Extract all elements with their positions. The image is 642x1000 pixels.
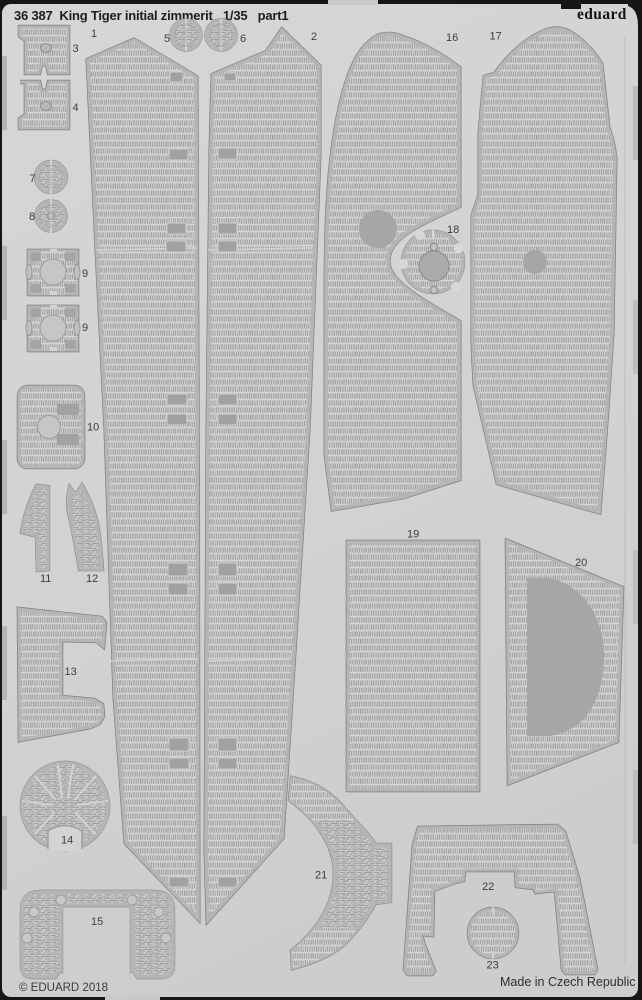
svg-text:21: 21 [315,870,327,882]
svg-text:9: 9 [82,268,88,280]
svg-text:12: 12 [86,573,98,585]
svg-text:3: 3 [73,43,79,55]
svg-text:11: 11 [40,573,51,585]
svg-text:eduard: eduard [577,6,627,23]
svg-text:18: 18 [447,224,459,236]
svg-text:2: 2 [311,31,317,43]
svg-text:7: 7 [30,173,36,185]
svg-text:14: 14 [61,835,73,847]
svg-text:9: 9 [82,322,88,334]
svg-text:1: 1 [91,28,97,40]
svg-text:15: 15 [91,916,103,928]
svg-text:4: 4 [73,102,79,114]
svg-text:23: 23 [487,960,499,972]
svg-text:19: 19 [407,529,419,541]
svg-text:8: 8 [29,211,35,223]
svg-text:10: 10 [87,422,99,434]
svg-text:20: 20 [575,557,587,569]
svg-text:5: 5 [164,33,170,45]
svg-text:36 387 King Tiger initial zim: 36 387 King Tiger initial zimmerit 1/35 … [14,8,288,23]
svg-text:16: 16 [446,32,458,44]
svg-text:6: 6 [240,33,246,45]
svg-text:17: 17 [490,31,502,43]
svg-text:Made in Czech Republic: Made in Czech Republic [500,975,636,989]
svg-text:13: 13 [65,666,77,678]
svg-text:22: 22 [482,881,494,893]
svg-text:© EDUARD 2018: © EDUARD 2018 [19,982,108,994]
